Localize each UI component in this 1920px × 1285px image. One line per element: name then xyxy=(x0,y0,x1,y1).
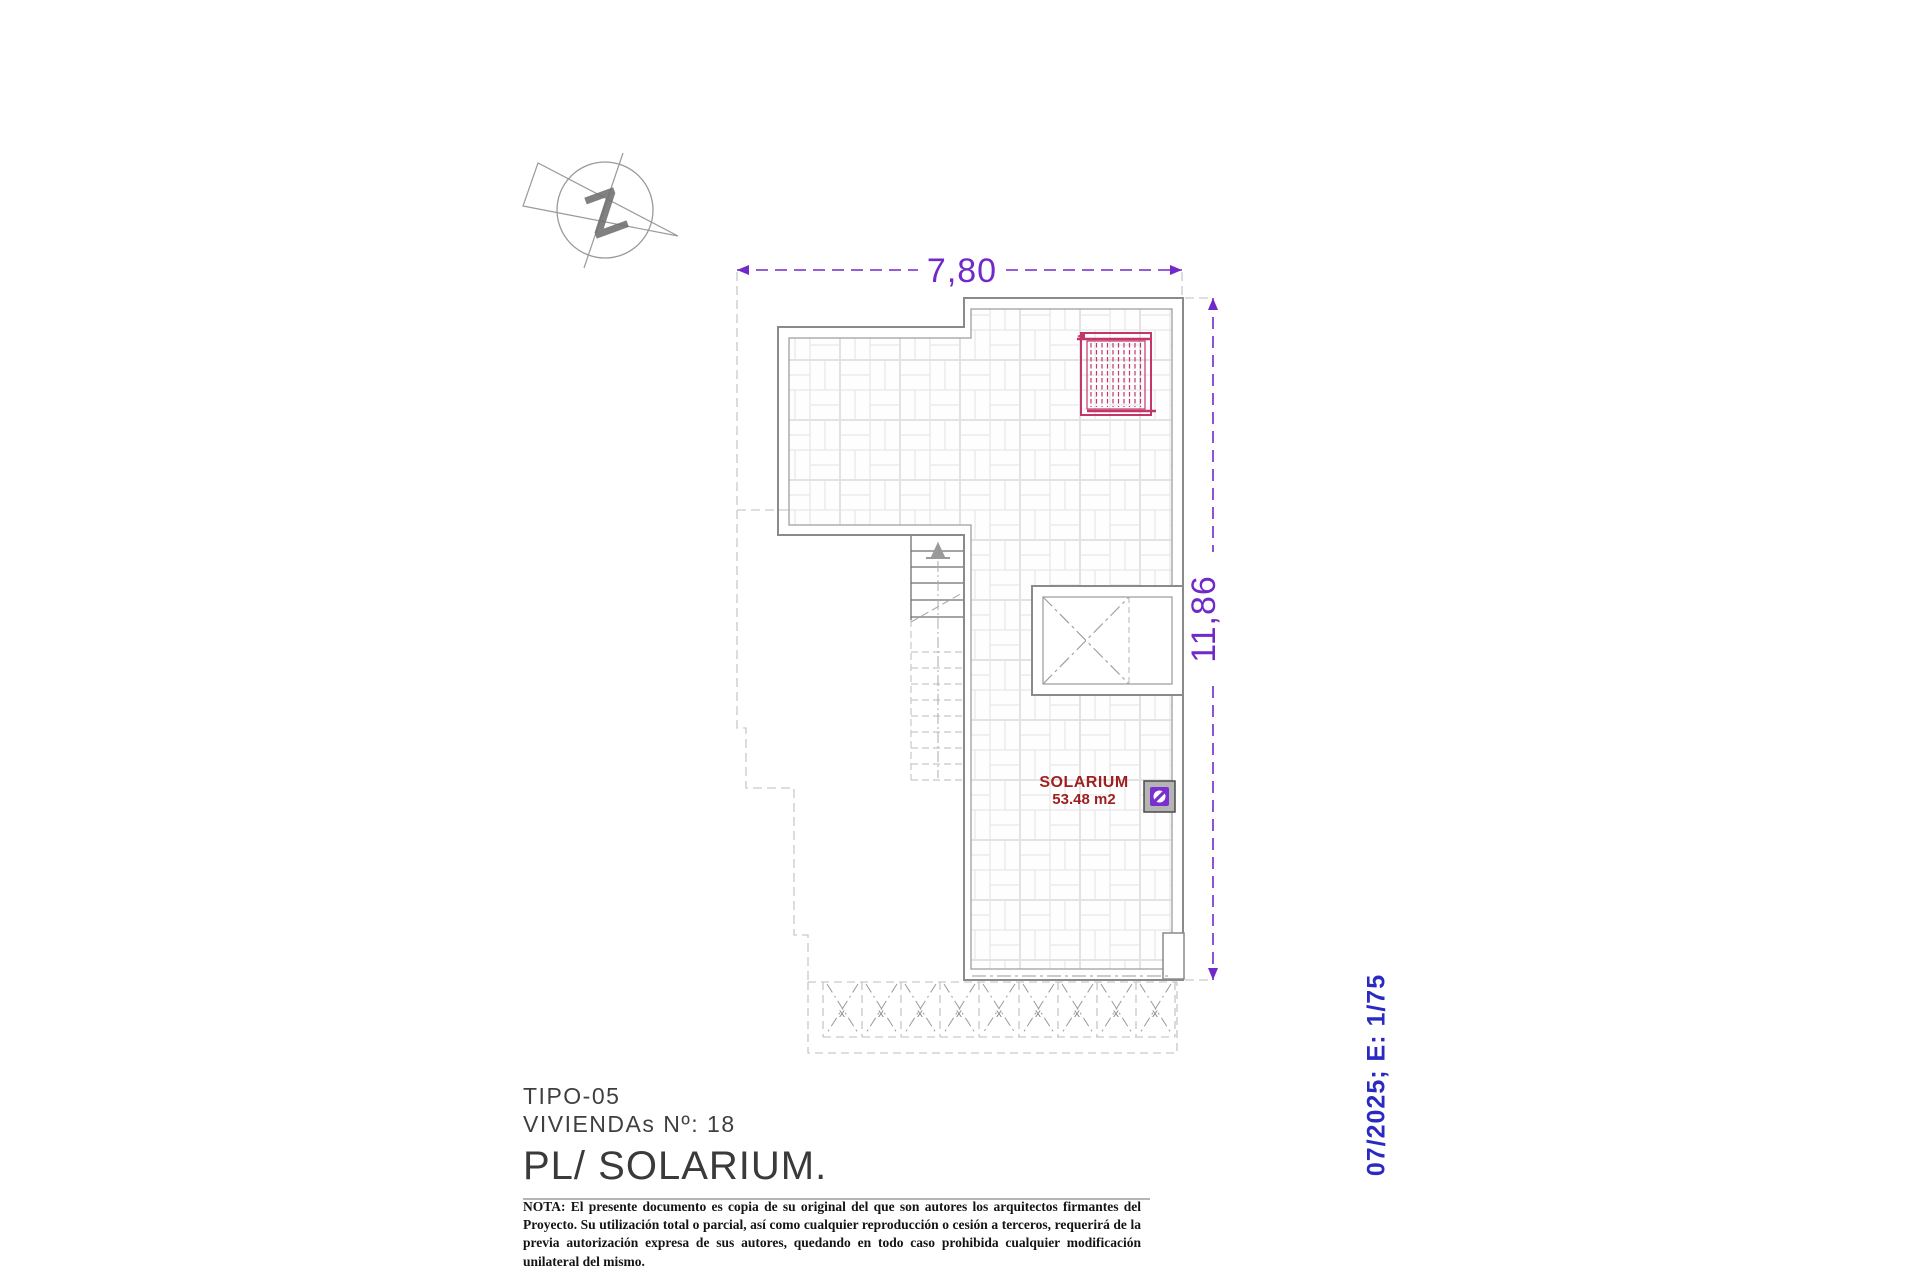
pergola-x-mark: x xyxy=(1152,1006,1158,1020)
pergola: x x x x x x x x x xyxy=(808,982,1177,1053)
pergola-x-mark: x xyxy=(917,1006,923,1020)
pergola-x-mark: x xyxy=(956,1006,962,1020)
pergola-x-mark: x xyxy=(996,1006,1002,1020)
room-label: SOLARIUM 53.48 m2 xyxy=(1039,774,1128,808)
stairs xyxy=(911,535,964,780)
drain-icon xyxy=(1144,781,1175,812)
dimension-height-label: 11,86 xyxy=(1185,575,1223,663)
room-area: 53.48 m2 xyxy=(1052,791,1115,808)
north-arrow-icon: Z xyxy=(523,153,678,268)
pergola-x-mark: x xyxy=(1074,1006,1080,1020)
viviendas-label: VIVIENDAs Nº: 18 xyxy=(523,1112,1150,1137)
pergola-x-mark: x xyxy=(1035,1006,1041,1020)
date-scale-text: 07/2025; E: 1/75 xyxy=(1363,974,1392,1176)
dimension-width-label: 7,80 xyxy=(927,252,997,290)
title-block: TIPO-05 VIVIENDAs Nº: 18 PL/ SOLARIUM. xyxy=(523,1084,1150,1200)
pergola-x-mark: x xyxy=(878,1006,884,1020)
type-label: TIPO-05 xyxy=(523,1084,1150,1109)
floor-void xyxy=(1032,586,1183,695)
corner-pillar xyxy=(1163,933,1184,979)
pergola-x-mark: x xyxy=(839,1006,845,1020)
room-name: SOLARIUM xyxy=(1039,774,1128,791)
pergola-x-mark: x xyxy=(1113,1006,1119,1020)
disclaimer-note: NOTA: El presente documento es copia de … xyxy=(523,1198,1141,1271)
north-letter: Z xyxy=(576,175,635,253)
plan-title: PL/ SOLARIUM. xyxy=(523,1144,1150,1188)
dimension-height: 11,86 xyxy=(1185,298,1223,980)
dimension-width: 7,80 xyxy=(737,252,1182,290)
